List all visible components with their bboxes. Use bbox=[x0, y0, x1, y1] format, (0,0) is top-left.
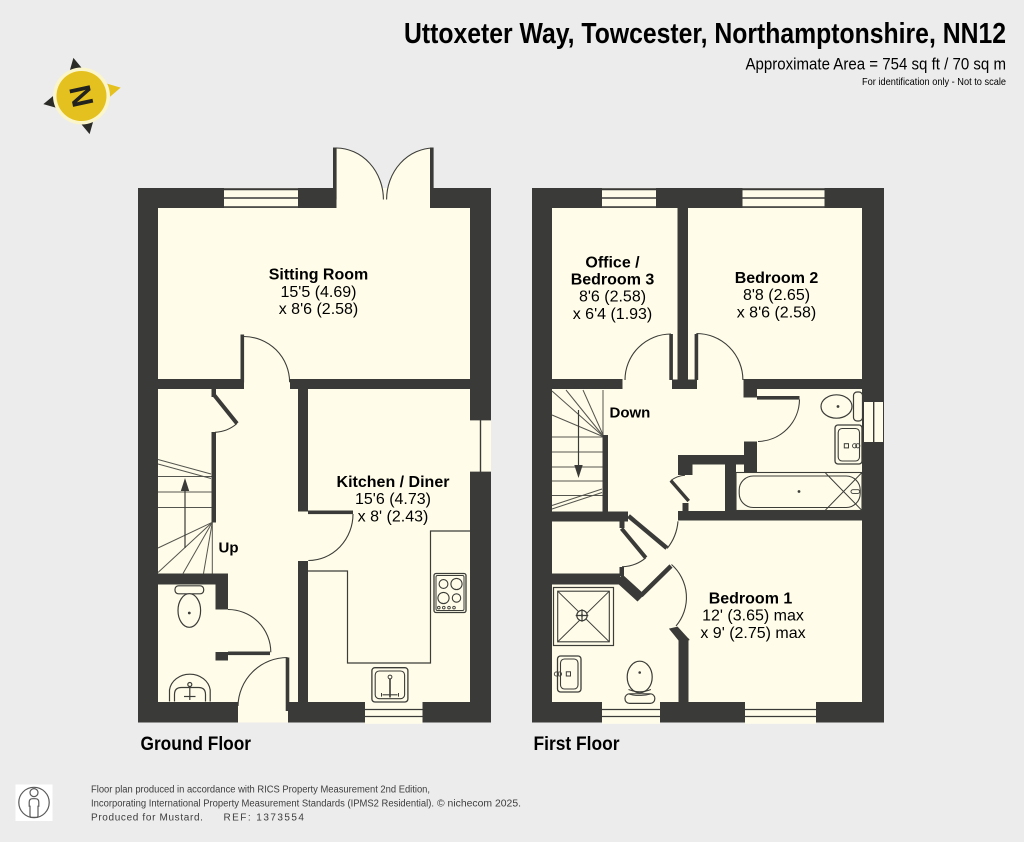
svg-text:x 9' (2.75) max: x 9' (2.75) max bbox=[700, 625, 805, 642]
svg-text:15'5 (4.69): 15'5 (4.69) bbox=[281, 284, 357, 301]
svg-text:Incorporating International Pr: Incorporating International Property Mea… bbox=[91, 799, 434, 810]
svg-text:First Floor: First Floor bbox=[534, 734, 621, 755]
svg-text:Floor plan produced in accorda: Floor plan produced in accordance with R… bbox=[91, 785, 430, 796]
svg-text:Produced for Mustard.: Produced for Mustard. bbox=[91, 813, 204, 824]
svg-text:Ground Floor: Ground Floor bbox=[141, 734, 252, 755]
svg-text:Sitting Room: Sitting Room bbox=[269, 267, 369, 284]
svg-text:Down: Down bbox=[610, 405, 651, 422]
svg-text:x 8' (2.43): x 8' (2.43) bbox=[358, 508, 429, 525]
svg-text:Bedroom 3: Bedroom 3 bbox=[571, 272, 655, 289]
svg-text:12' (3.65) max: 12' (3.65) max bbox=[702, 608, 804, 625]
svg-text:x 6'4 (1.93): x 6'4 (1.93) bbox=[573, 306, 653, 323]
svg-text:For identification only - Not: For identification only - Not to scale bbox=[862, 76, 1006, 88]
svg-text:x 8'6 (2.58): x 8'6 (2.58) bbox=[737, 304, 817, 321]
svg-text:Bedroom 2: Bedroom 2 bbox=[735, 270, 819, 287]
svg-text:© nichecom 2025.: © nichecom 2025. bbox=[437, 799, 521, 810]
svg-text:Uttoxeter Way, Towcester, Nort: Uttoxeter Way, Towcester, Northamptonshi… bbox=[404, 18, 1006, 50]
svg-text:Kitchen / Diner: Kitchen / Diner bbox=[337, 474, 450, 491]
svg-text:8'8 (2.65): 8'8 (2.65) bbox=[743, 287, 810, 304]
svg-text:8'6 (2.58): 8'6 (2.58) bbox=[579, 289, 646, 306]
svg-text:Up: Up bbox=[219, 540, 239, 557]
svg-text:15'6 (4.73): 15'6 (4.73) bbox=[355, 491, 431, 508]
svg-text:REF: 1373554: REF: 1373554 bbox=[224, 813, 306, 824]
svg-text:x 8'6 (2.58): x 8'6 (2.58) bbox=[279, 301, 359, 318]
svg-text:Approximate Area = 754 sq ft /: Approximate Area = 754 sq ft / 70 sq m bbox=[746, 55, 1007, 74]
svg-text:Bedroom 1: Bedroom 1 bbox=[709, 590, 793, 607]
svg-text:Office /: Office / bbox=[585, 254, 640, 271]
